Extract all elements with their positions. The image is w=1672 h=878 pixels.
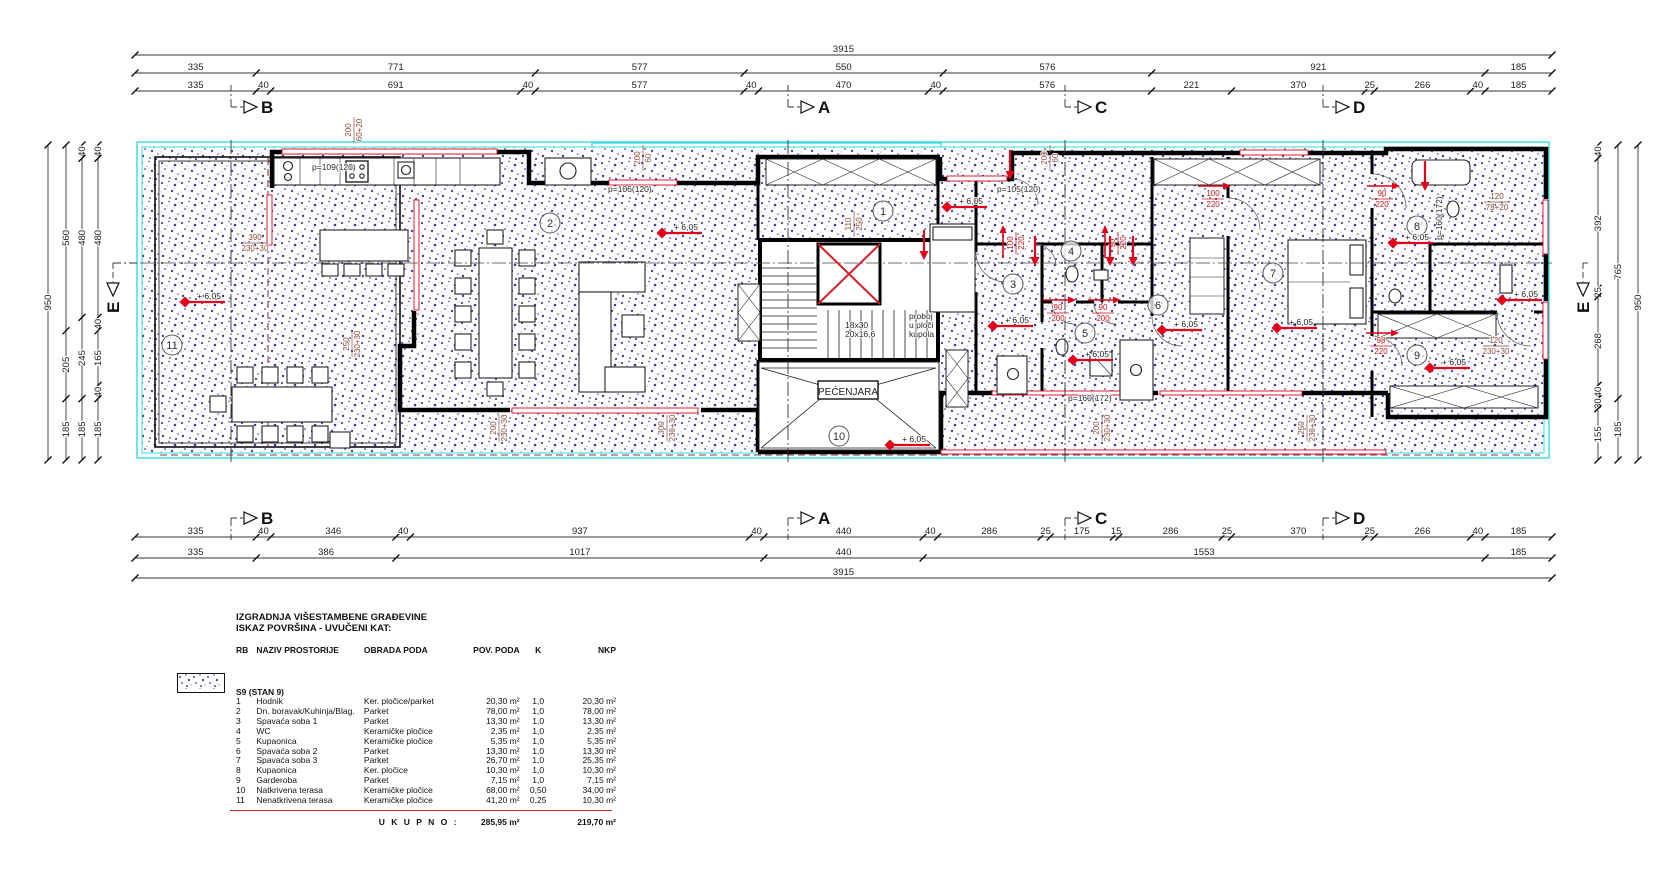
section-marker-E-right: E [1574,263,1593,313]
svg-text:440: 440 [836,547,852,558]
svg-text:250: 250 [855,217,864,231]
svg-text:220: 220 [1119,236,1128,250]
svg-text:+ 6,05: + 6,05 [1005,315,1029,325]
dim-top-0: 3915 [132,44,1556,59]
svg-text:40: 40 [1473,80,1484,91]
plan-text: 20x16,6 [845,329,876,339]
svg-text:+ 6,05: + 6,05 [1174,319,1198,329]
svg-text:691: 691 [388,80,404,91]
svg-text:90: 90 [1378,189,1387,198]
svg-text:p=160(172): p=160(172) [1068,393,1112,403]
cell: 10,30 m² [557,796,616,806]
svg-text:1017: 1017 [569,547,590,558]
svg-text:470: 470 [836,80,852,91]
plan-text: p=105(120) [997,184,1041,194]
svg-text:3915: 3915 [833,44,854,55]
svg-text:577: 577 [632,80,648,91]
svg-text:+ 6,05: + 6,05 [1289,317,1313,327]
cell: Spavaća soba 1 [256,717,364,727]
svg-text:346: 346 [325,526,341,537]
svg-text:C: C [1095,509,1107,528]
dim-left-1: 560205185 [61,142,72,464]
svg-text:165: 165 [93,350,104,366]
cell: Keramičke pločice [364,796,459,806]
dining-table [455,230,535,396]
svg-text:9: 9 [1414,350,1420,362]
legend-stipple-swatch [177,673,225,693]
svg-text:25: 25 [1365,526,1376,537]
svg-text:200: 200 [489,421,498,435]
svg-text:20x16,6: 20x16,6 [845,329,876,339]
svg-text:230+30: 230+30 [242,244,269,253]
svg-text:185: 185 [1511,80,1527,91]
svg-text:B: B [261,509,273,528]
svg-text:440: 440 [836,526,852,537]
room-number-1: 1 [873,201,893,221]
svg-text:480: 480 [77,230,88,246]
svg-text:230+30: 230+30 [500,414,509,441]
svg-text:D: D [1353,98,1365,117]
svg-text:390: 390 [248,233,262,242]
svg-text:90: 90 [1099,303,1108,312]
svg-text:C: C [1095,98,1107,117]
svg-text:1553: 1553 [1194,547,1215,558]
cell: 0,25 [520,796,557,806]
svg-text:kupola: kupola [909,329,934,339]
schedule-column-headers: RB NAZIV PROSTORIJE OBRADA PODA POV. POD… [236,645,616,655]
dim-left-3: 404804016540185 [93,142,104,464]
svg-text:120: 120 [1489,336,1503,345]
svg-text:40: 40 [746,80,757,91]
svg-text:+ 6,05: + 6,05 [674,222,698,232]
svg-text:950: 950 [1633,295,1644,311]
svg-text:1: 1 [880,206,886,218]
dim-top-1: 335771577550576921185 [132,62,1556,77]
col-obrada: OBRADA PODA [364,645,459,655]
svg-text:100: 100 [1206,189,1220,198]
room-number-7: 7 [1263,263,1283,283]
total-pov-value: 285,95 m² [458,817,519,827]
svg-text:250: 250 [342,337,351,351]
room-schedule: IZGRADNJA VIŠESTAMBENE GRAĐEVINE ISKAZ P… [236,612,616,827]
svg-text:40: 40 [1473,526,1484,537]
svg-text:220: 220 [1375,200,1389,209]
svg-text:200: 200 [633,151,642,165]
closet-room7 [1190,238,1224,314]
dim-right-0: 40392252684030155 [1593,142,1604,464]
svg-text:5: 5 [1082,328,1088,340]
svg-text:250: 250 [1297,421,1306,435]
dim-bottom-0: 3354034640937404404028625175152862537025… [132,526,1556,541]
svg-text:221: 221 [1183,80,1199,91]
svg-text:550: 550 [836,62,852,73]
svg-text:300: 300 [657,421,666,435]
svg-text:480: 480 [93,230,104,246]
dim-right-2: 950 [1633,142,1644,464]
svg-text:40: 40 [523,80,534,91]
svg-text:p=109(120): p=109(120) [312,162,356,172]
svg-text:p=106(120): p=106(120) [608,184,652,194]
svg-text:p=105(120): p=105(120) [997,184,1041,194]
svg-text:25: 25 [1365,80,1376,91]
wardrobe-band-1 [766,159,936,185]
svg-text:PEĆENJARA: PEĆENJARA [818,385,878,398]
svg-text:40: 40 [1593,387,1604,398]
svg-text:40: 40 [93,319,104,330]
svg-text:175: 175 [1074,526,1090,537]
wardrobe-v1 [946,350,968,407]
window-dimension-label: 20060+20 [344,117,364,143]
svg-text:60: 60 [644,153,653,162]
svg-text:392: 392 [1593,215,1604,231]
room-number-5: 5 [1075,323,1095,343]
svg-text:40: 40 [398,526,409,537]
svg-text:E: E [1574,302,1593,313]
wardrobe-band-2 [1154,159,1320,185]
svg-text:+ 6,05: + 6,05 [197,291,221,301]
dim-bottom-1: 33538610174401553185 [132,547,1556,562]
section-marker-E-left: E [104,263,140,313]
svg-text:560: 560 [61,230,72,246]
svg-text:11: 11 [166,340,177,352]
svg-text:120: 120 [1490,192,1504,201]
svg-text:A: A [818,98,830,117]
bed-room7 [1288,240,1366,324]
desk-1 [997,356,1027,394]
svg-text:370: 370 [1290,80,1306,91]
cell: Nenatkrivena terasa [256,796,364,806]
dim-left-2: 40480245185 [77,142,88,464]
svg-text:+ 6,05: + 6,05 [902,434,926,444]
cell: 41,20 m² [458,796,519,806]
total-label: U K U P N O : [236,817,458,827]
svg-text:98: 98 [1377,336,1386,345]
wardrobe-v2 [738,284,760,341]
svg-text:40: 40 [93,387,104,398]
svg-text:200: 200 [1040,151,1049,165]
col-pov: POV. PODA [458,645,519,655]
svg-text:40: 40 [925,526,936,537]
svg-text:7: 7 [1270,268,1276,280]
schedule-total-row: U K U P N O : 285,95 m² 219,70 m² [236,817,616,827]
schedule-title-line1: IZGRADNJA VIŠESTAMBENE GRAĐEVINE [236,612,616,623]
svg-text:220: 220 [1206,200,1220,209]
svg-text:40: 40 [930,80,941,91]
svg-text:335: 335 [188,526,204,537]
svg-text:40: 40 [751,526,762,537]
total-separator-line [230,810,612,811]
svg-text:90: 90 [1054,303,1063,312]
svg-text:110: 110 [844,217,853,230]
svg-text:p=160(172): p=160(172) [1434,196,1444,240]
svg-text:950: 950 [43,295,54,311]
svg-text:200: 200 [344,123,353,137]
svg-text:230+30: 230+30 [353,330,362,357]
svg-text:230+30: 230+30 [668,414,677,441]
svg-text:335: 335 [188,80,204,91]
svg-text:205: 205 [61,357,72,373]
dim-right-1: 765185 [1613,142,1624,464]
svg-text:185: 185 [1613,421,1624,437]
svg-text:A: A [818,509,830,528]
svg-text:921: 921 [1310,62,1326,73]
svg-text:245: 245 [77,350,88,366]
svg-text:60+20: 60+20 [355,118,364,141]
schedule-rows: 1HodnikKer. pločice/parket20,30 m²1,020,… [236,697,616,806]
total-nkp-value: 219,70 m² [557,817,616,827]
pecenjara-label: PEĆENJARA [818,385,878,398]
svg-text:286: 286 [981,526,997,537]
svg-text:78+20: 78+20 [1486,203,1509,212]
svg-text:370: 370 [1290,526,1306,537]
svg-text:40: 40 [1593,146,1604,157]
svg-text:230+30: 230+30 [1103,414,1112,441]
svg-text:266: 266 [1415,80,1431,91]
dim-top-2: 335406914057740470405762213702526640185 [132,80,1556,95]
dim-left-0: 950 [43,142,54,464]
svg-text:155: 155 [1593,426,1604,442]
svg-text:576: 576 [1039,80,1055,91]
svg-text:335: 335 [188,547,204,558]
svg-text:40: 40 [77,146,88,157]
svg-text:+ 6,05: + 6,05 [1514,289,1538,299]
svg-text:60: 60 [1051,153,1060,162]
svg-text:185: 185 [93,421,104,437]
plan-text: p=109(120) [312,162,356,172]
plan-text: p=160(172) [1068,393,1112,403]
svg-text:+ 6,05: + 6,05 [959,196,983,206]
svg-text:4: 4 [1068,246,1074,258]
svg-text:765: 765 [1613,264,1624,280]
cell: 11 [236,796,256,806]
svg-text:200: 200 [1051,314,1065,323]
svg-text:+ 6,05: + 6,05 [1405,232,1429,242]
plan-text: p=106(120) [608,184,652,194]
svg-text:577: 577 [632,62,648,73]
wardrobe-band-4 [1390,386,1538,408]
col-naziv: NAZIV PROSTORIJE [256,645,364,655]
svg-text:10: 10 [833,431,845,443]
svg-text:+ 6,05: + 6,05 [1442,357,1466,367]
svg-text:386: 386 [318,547,334,558]
svg-text:185: 185 [1511,526,1527,537]
svg-text:+ 6,05: + 6,05 [1085,349,1109,359]
svg-text:25: 25 [1222,526,1233,537]
room-number-3: 3 [1003,274,1023,294]
svg-text:3: 3 [1010,279,1016,291]
svg-text:185: 185 [1511,62,1527,73]
svg-text:40: 40 [93,146,104,157]
schedule-row-11: 11Nenatkrivena terasaKeramičke pločice41… [236,796,616,806]
svg-text:40: 40 [258,80,269,91]
svg-text:220: 220 [1017,236,1026,250]
svg-text:200: 200 [1096,314,1110,323]
svg-text:220: 220 [1374,347,1388,356]
col-k: K [520,645,557,655]
svg-text:230+30: 230+30 [1483,347,1510,356]
svg-text:25: 25 [1040,526,1051,537]
svg-text:230+30: 230+30 [1308,414,1317,441]
svg-text:185: 185 [61,421,72,437]
room-number-2: 2 [540,213,560,233]
schedule-title-line2: ISKAZ POVRŠINA - UVUČENI KAT: [236,623,616,634]
col-rb: RB [236,645,256,655]
plan-text: p=160(172) [1434,196,1444,240]
svg-text:185: 185 [77,421,88,437]
desk-2 [1120,340,1153,400]
svg-text:200: 200 [1092,421,1101,435]
room-number-10: 10 [829,426,849,446]
svg-text:100: 100 [1006,236,1015,250]
floorplan-sheet: 3915335771577550576921185335406914057740… [0,0,1672,878]
room-number-6: 6 [1148,295,1168,315]
svg-text:E: E [104,302,123,313]
dim-bottom-2: 3915 [132,567,1556,582]
svg-text:335: 335 [188,62,204,73]
svg-text:266: 266 [1415,526,1431,537]
svg-text:937: 937 [572,526,588,537]
svg-text:268: 268 [1593,333,1604,349]
svg-text:771: 771 [388,62,404,73]
col-nkp: NKP [557,645,616,655]
svg-text:3915: 3915 [833,567,854,578]
room-number-9: 9 [1407,345,1427,365]
svg-text:B: B [261,98,273,117]
svg-text:576: 576 [1040,62,1056,73]
room-number-11: 11 [162,335,182,355]
room-number-4: 4 [1061,241,1081,261]
plan-text: kupola [909,329,934,339]
svg-text:185: 185 [1511,547,1527,558]
bed-room3 [930,224,975,312]
svg-text:286: 286 [1163,526,1179,537]
svg-text:2: 2 [547,218,553,230]
svg-text:D: D [1353,509,1365,528]
svg-text:6: 6 [1155,300,1161,312]
